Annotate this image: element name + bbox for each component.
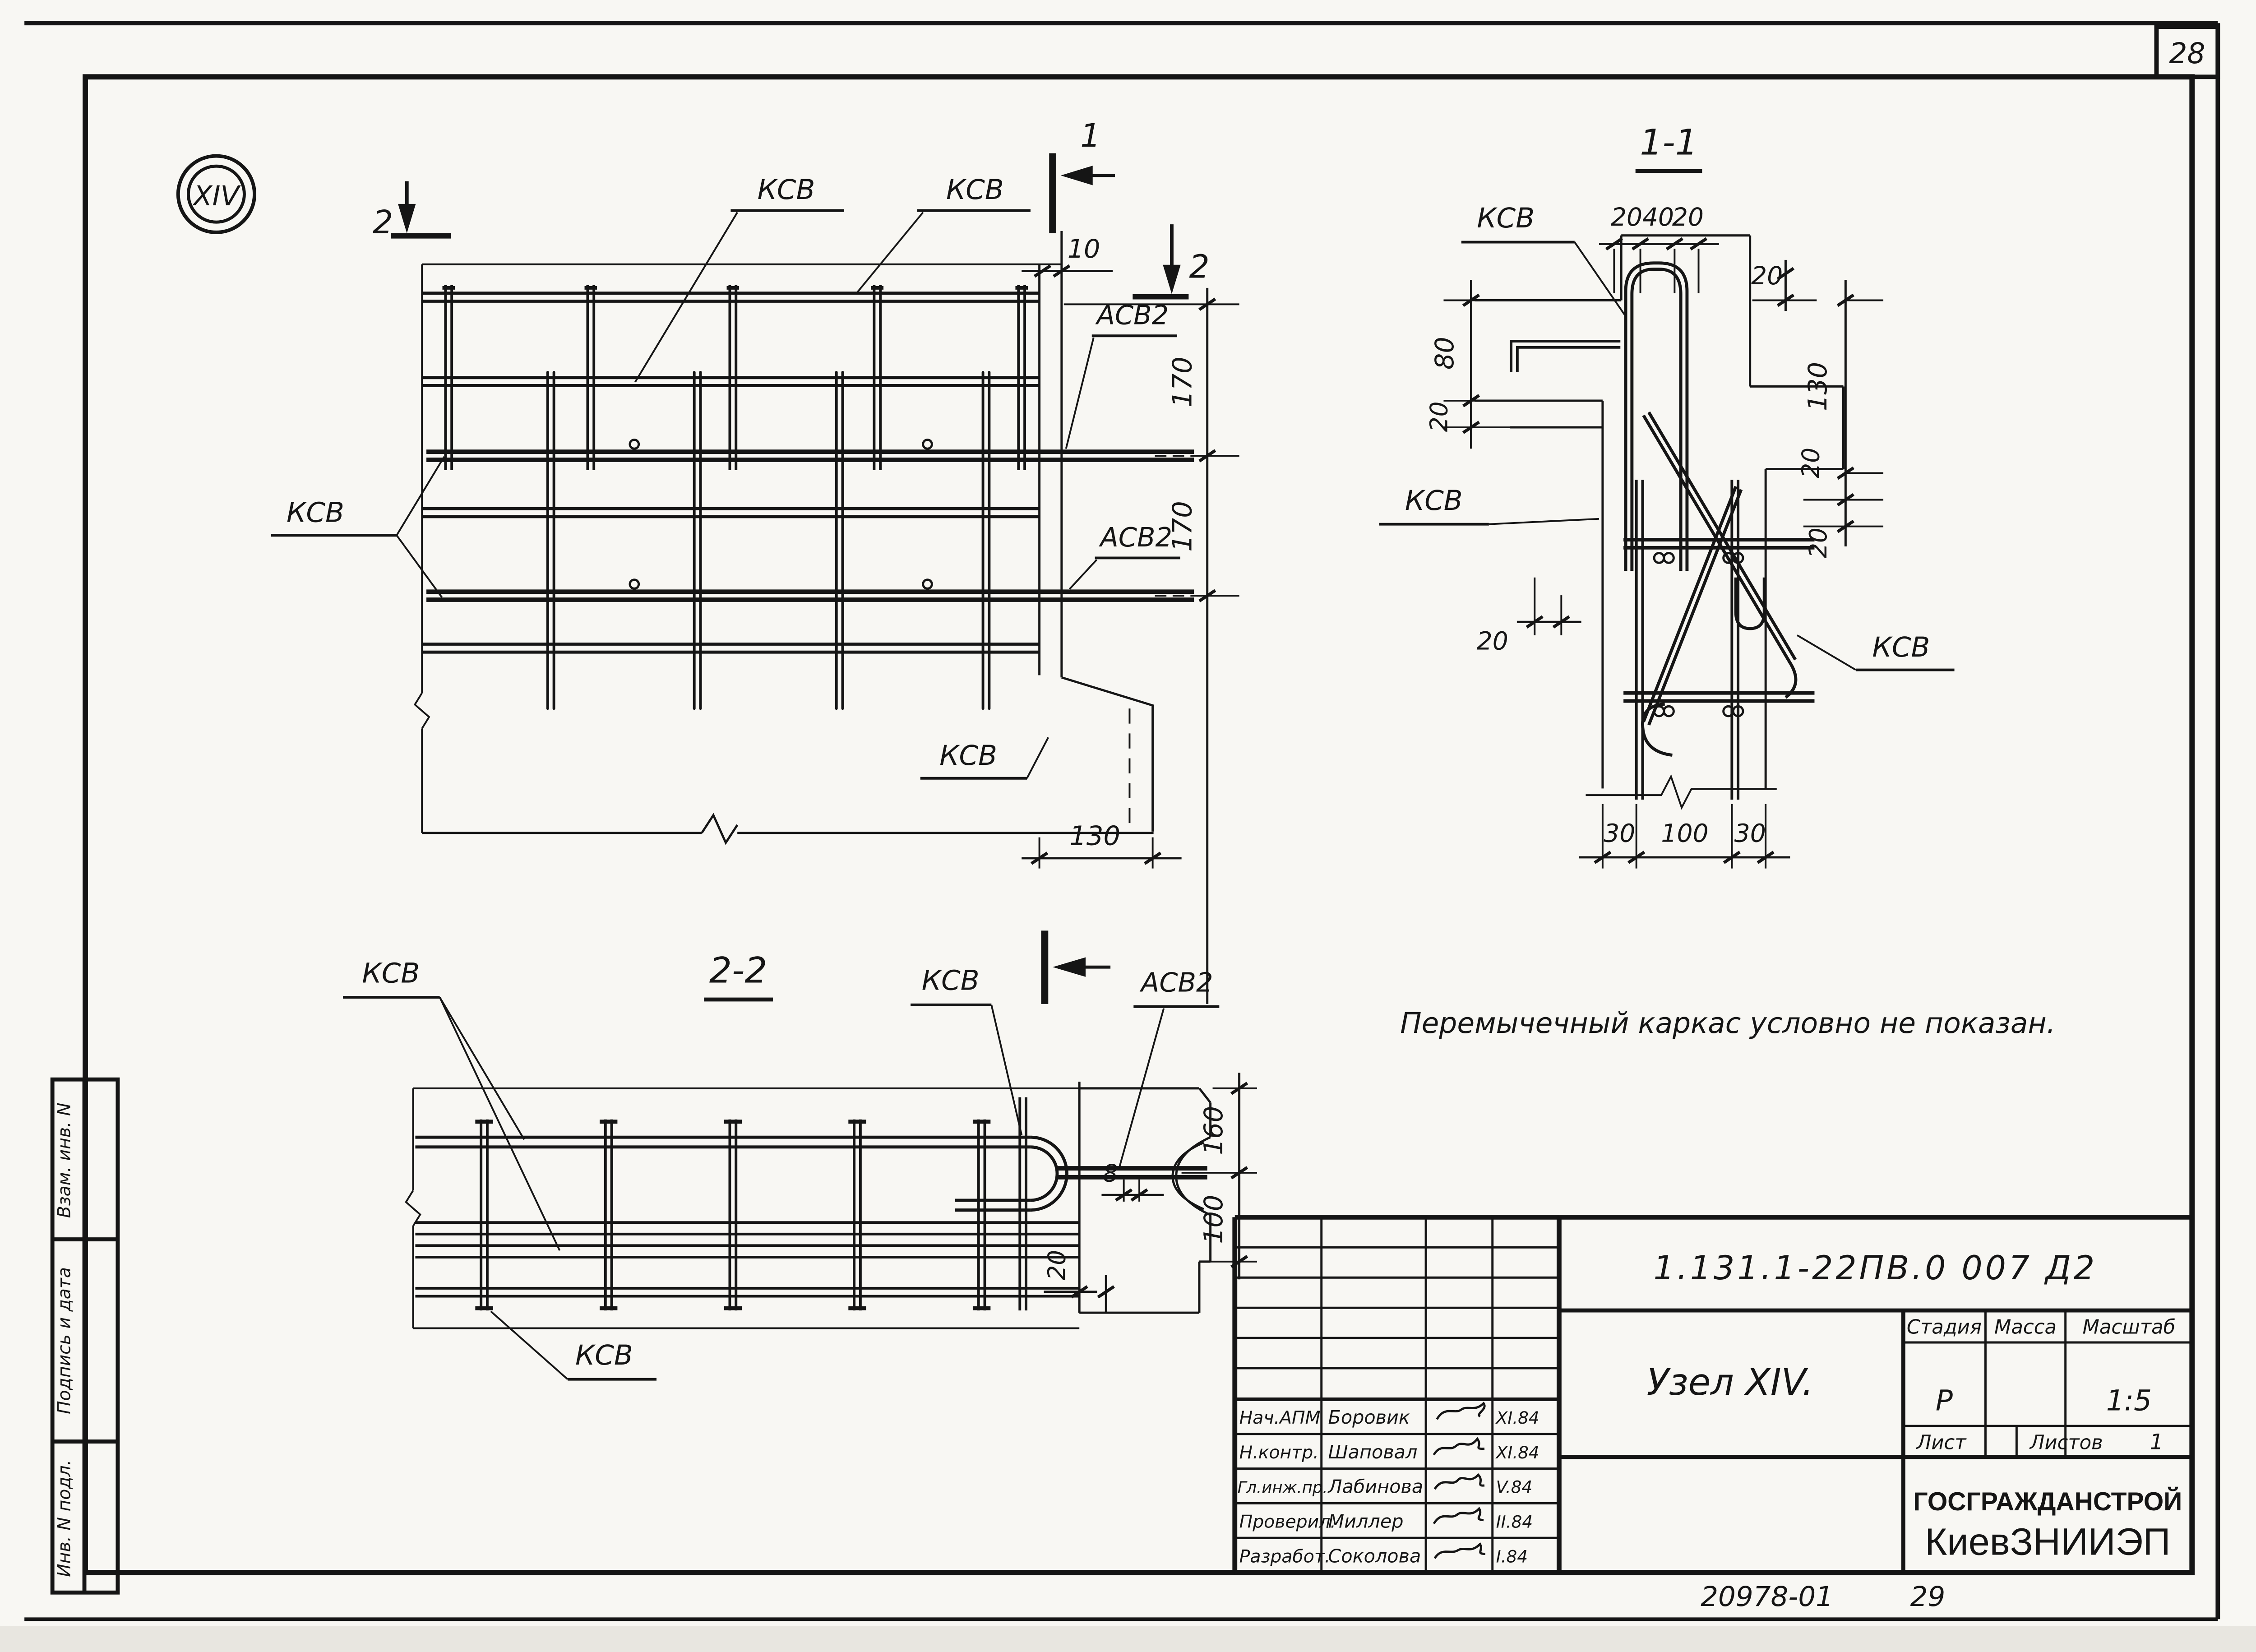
section-mark-1-bottom [1045,930,1110,1004]
break-symbol [415,693,429,729]
svg-text:20: 20 [1477,626,1508,655]
stage-value: Р [1936,1384,1953,1417]
dims-right: 20 130 20 20 [1751,260,1883,558]
svg-text:V.84: V.84 [1496,1477,1533,1497]
svg-text:20: 20 [1425,402,1453,432]
sheet-row: Лист Листов 1 [1903,1426,2192,1457]
svg-text:КСВ: КСВ [946,174,1004,206]
svg-text:100: 100 [1661,819,1708,848]
stage-label: Стадия [1907,1316,1982,1338]
svg-text:КСВ: КСВ [758,174,815,206]
doc-number: 1.131.1-22ПВ.0 007 Д2 [1653,1249,2097,1287]
footer-page-number: 29 [1910,1581,1946,1613]
svg-text:160: 160 [1199,1106,1229,1155]
section-mark-2-left: 2 [373,181,451,241]
weld-dots [630,440,932,589]
svg-text:АСВ2: АСВ2 [1139,967,1213,998]
section-2-2: 2-2 [343,950,1257,1379]
organization: ГОСГРАЖДАНСТРОЙ КиевЗНИИЭП [1913,1487,2182,1563]
svg-text:КСВ: КСВ [1405,485,1463,517]
plan-acb2-labels: АСВ2 АСВ2 [1066,300,1180,589]
slab-bar [1511,341,1620,372]
svg-text:20: 20 [1797,448,1825,478]
svg-text:8: 8 [1103,1160,1118,1188]
margin-cell-inv: Инв. N подл. [54,1460,75,1577]
drawing-title: Узел XIV. [1647,1361,1814,1404]
scale-value: 1:5 [2106,1384,2152,1417]
svg-text:10: 10 [1068,234,1100,264]
svg-text:КСВ: КСВ [1477,202,1535,234]
sheets-value: 1 [2150,1430,2163,1454]
svg-text:Проверил.: Проверил. [1239,1512,1336,1532]
drawing-note: Перемычечный каркас условно не показан. [1400,1007,2056,1040]
section-title: 1-1 [1640,122,1698,163]
svg-text:АСВ2: АСВ2 [1098,522,1172,553]
footer: 20978-01 29 [1701,1581,1945,1613]
svg-text:КСВ: КСВ [362,958,420,990]
svg-text:Соколова: Соколова [1328,1545,1421,1567]
svg-text:КСВ: КСВ [287,497,344,529]
mass-label: Масса [1994,1316,2057,1338]
hook-bar [1626,263,1687,571]
svg-text:Миллер: Миллер [1328,1511,1403,1532]
signature-icon [1434,1403,1485,1559]
cross-bars [475,1097,1026,1311]
break-symbol [406,1190,421,1226]
svg-text:30: 30 [1604,819,1635,848]
section-label: 2 [1189,248,1209,285]
section-mark-2-right: 2 [1133,224,1209,296]
plan-view: 1 2 2 10 [271,117,1239,1004]
svg-text:170: 170 [1166,356,1197,407]
drawing-sheet: 28 Взам. инв. N Подпись и дата Инв. N по… [0,0,2256,1626]
svg-text:Разработ.: Разработ. [1239,1546,1331,1567]
dim-20-40-20: 20 40 20 [1599,203,1719,293]
svg-text:КСВ: КСВ [939,740,997,772]
title-block: 1.131.1-22ПВ.0 007 Д2 Узел XIV. Стадия М… [1235,1217,2192,1573]
section1-kcb-labels: КСВ КСВ КСВ [1379,202,1955,670]
svg-text:30: 30 [1734,819,1766,848]
footer-doc-number: 20978-01 [1701,1581,1833,1613]
svg-text:20: 20 [1672,203,1704,231]
svg-text:I.84: I.84 [1496,1546,1528,1566]
svg-text:II.84: II.84 [1496,1512,1533,1532]
svg-text:XI.84: XI.84 [1495,1408,1539,1428]
dim-30-100-30: 30 100 30 [1579,804,1790,869]
svg-text:20: 20 [1751,261,1783,290]
break-symbol [1586,777,1776,808]
svg-text:Нач.АПМ: Нач.АПМ [1239,1407,1321,1428]
section-mark-1-top: 1 [1053,117,1115,233]
j-hook [1642,704,1672,755]
svg-text:XI.84: XI.84 [1495,1443,1539,1462]
dim-10: 10 [1022,234,1113,276]
dim-130: 130 [1022,820,1181,868]
dims-left: 80 20 [1425,280,1515,449]
svg-text:20: 20 [1804,528,1832,558]
svg-text:Н.контр.: Н.контр. [1239,1442,1319,1463]
svg-text:Лабинова: Лабинова [1327,1476,1423,1498]
svg-text:Гл.инж.пр.: Гл.инж.пр. [1238,1479,1328,1497]
top-chord [415,1137,1067,1210]
svg-text:КСВ: КСВ [575,1339,633,1371]
dim-170-chain: 170 170 [1064,288,1239,1004]
sheet-frame: 28 [24,23,2218,1619]
page-number: 28 [2169,37,2205,70]
break-symbol [702,815,737,842]
section-label: 1 [1080,117,1100,154]
staff-rows: Нач.АПМ Боровик XI.84 Н.контр. Шаповал X… [1238,1403,1539,1567]
node-marker: XIV [178,156,254,232]
mesh-vertical-bars-lower [548,372,989,708]
diagonal-bars [1643,412,1796,725]
section-1-1: 1-1 [1379,122,1955,869]
svg-text:Шаповал: Шаповал [1328,1441,1417,1463]
svg-text:Боровик: Боровик [1328,1407,1410,1428]
section2-dims: 160 100 8 20 [1043,1073,1257,1297]
section-title: 2-2 [709,950,767,991]
sheets-label: Листов [2029,1431,2103,1454]
svg-text:100: 100 [1199,1195,1229,1244]
svg-text:КСВ: КСВ [1872,631,1930,663]
margin-stamp: Взам. инв. N Подпись и дата Инв. N подл. [52,1079,118,1592]
svg-text:80: 80 [1430,337,1460,370]
dim-20-bottom-left: 20 [1477,578,1581,655]
svg-text:130: 130 [1069,820,1120,851]
anchor-bars [426,452,1194,600]
svg-text:КСВ: КСВ [922,964,980,996]
margin-cell-vzam: Взам. инв. N [54,1102,75,1218]
svg-text:130: 130 [1803,362,1833,411]
node-marker-label: XIV [192,180,241,212]
margin-cell-podpis: Подпись и дата [54,1267,75,1414]
section-label: 2 [373,204,393,241]
sheet-label: Лист [1916,1431,1967,1454]
svg-text:20: 20 [1043,1250,1071,1281]
org-line1: ГОСГРАЖДАНСТРОЙ [1913,1487,2182,1516]
org-line2: КиевЗНИИЭП [1925,1520,2170,1563]
svg-text:40: 40 [1642,203,1674,231]
svg-text:АСВ2: АСВ2 [1095,300,1169,331]
scale-label: Масштаб [2083,1316,2176,1338]
svg-text:20: 20 [1611,203,1642,231]
